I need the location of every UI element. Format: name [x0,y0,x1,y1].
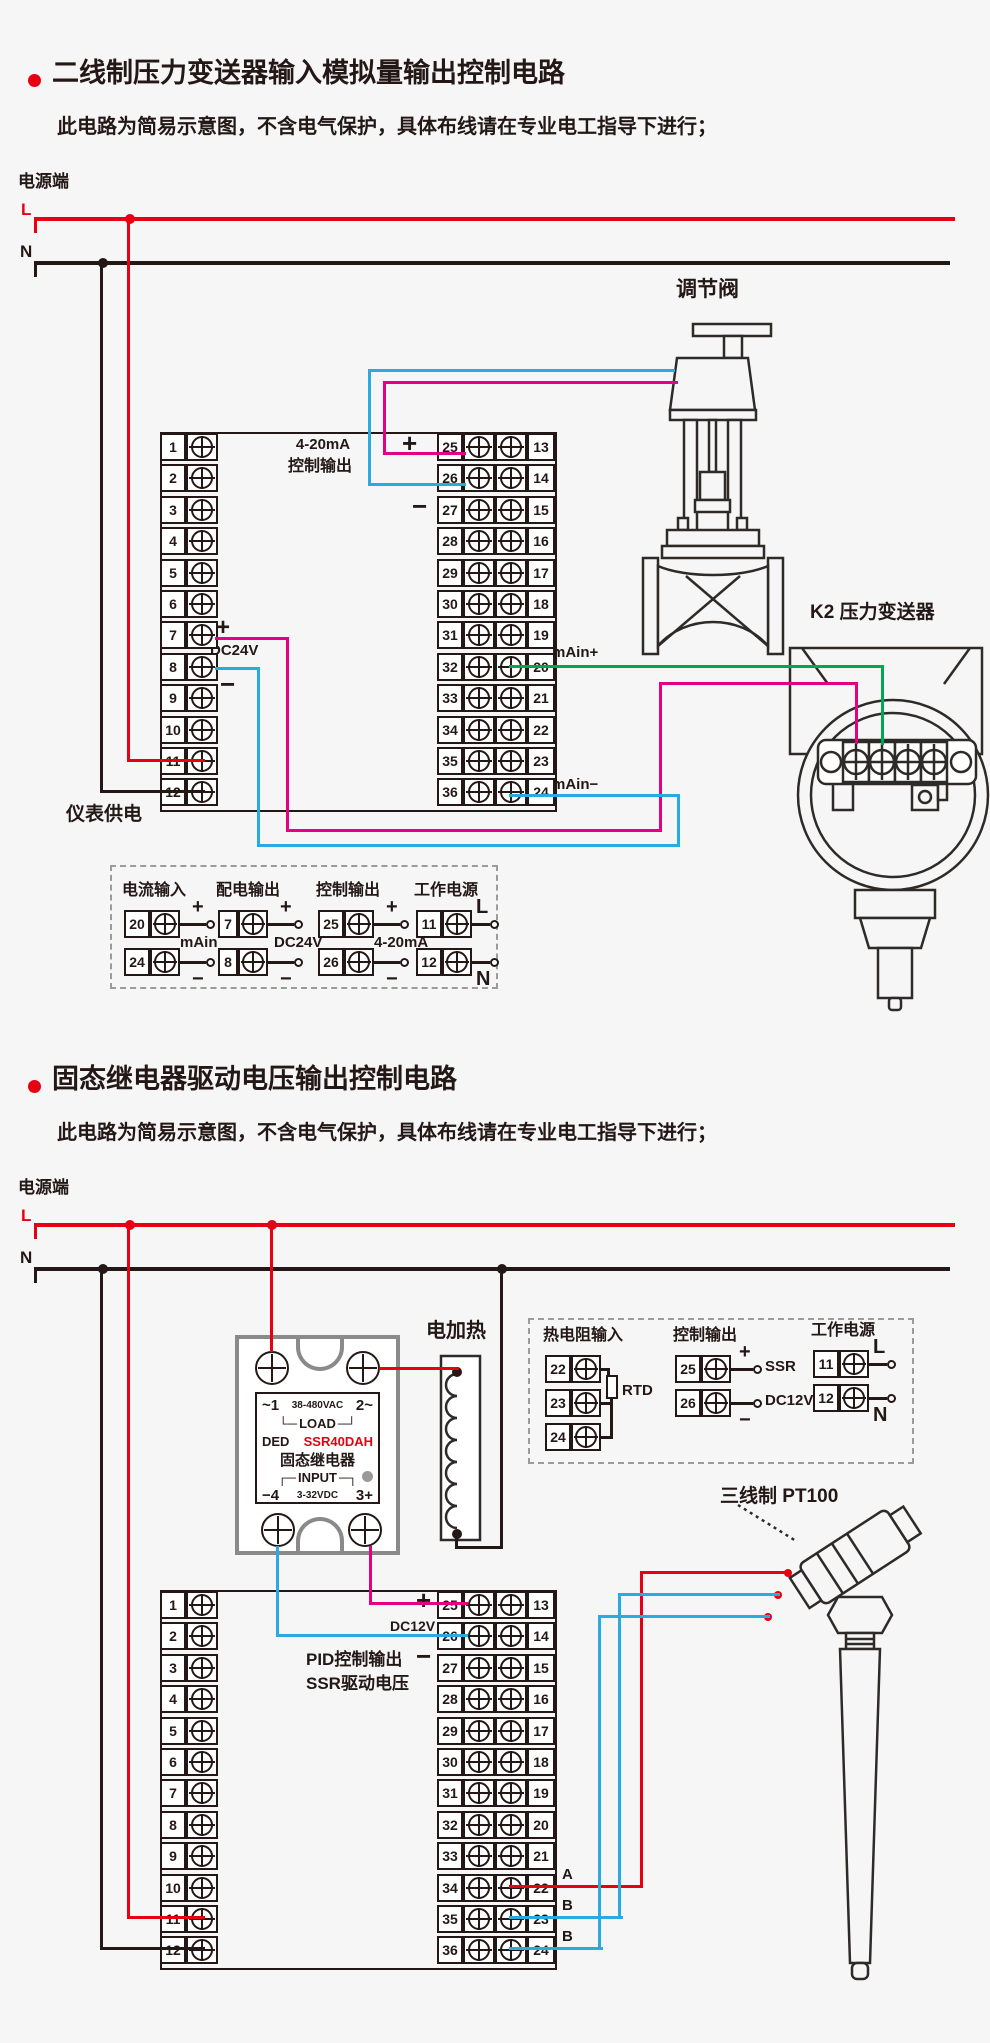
heater-label: 电加热 [426,1320,486,1343]
pt100-wire-b1-label: B [562,1897,573,1914]
block2-screw-b-16 [495,1685,527,1713]
legend2-sign-25: + [739,1341,751,1364]
legend1-end-25 [400,920,409,929]
legend1-w26 [374,961,400,964]
block1-num-mid-26: 26 [437,464,463,492]
block2-screw-left-5 [186,1717,218,1745]
s1-mvalve-v [383,381,386,455]
heater-figure [435,1352,495,1548]
block1-num-left-10: 10 [160,716,186,744]
ssr-screw-2 [346,1351,380,1385]
legend1-num-8: 8 [218,948,238,976]
block2-screw-a-33 [463,1842,495,1870]
block1-screw-a-29 [463,559,495,587]
block1-num-right-16: 16 [527,527,555,555]
legend1-tail-1: DC24V [274,934,322,951]
legend2-screw-26 [701,1389,731,1417]
legend1-sign-12: N [476,968,490,991]
s1-mloop-h1 [215,637,289,640]
block2-screw-left-9 [186,1842,218,1870]
s2-blk-drop-v [100,1269,103,1950]
block2-num-mid-33: 33 [437,1842,463,1870]
block1-num-right-24: 24 [527,778,555,806]
legend1-end-7 [294,920,303,929]
s2-line-l-tick [34,1223,37,1239]
s2-wb1-h1 [509,1916,623,1919]
block2-num-left-9: 9 [160,1842,186,1870]
block1-screw-a-34 [463,716,495,744]
legend1-title-0: 电流输入 [122,882,186,900]
s1-bloop-h3 [509,794,680,797]
block1-screw-b-23 [495,747,527,775]
s2-red-ssr-v [270,1225,273,1352]
legend2-rtd-v [610,1399,613,1439]
block2-screw-left-7 [186,1779,218,1807]
legend2-end-11 [887,1360,896,1369]
block1-num-left-8: 8 [160,653,186,681]
block1-screw-a-36 [463,778,495,806]
s1-blk-drop-h [100,790,205,793]
block2-num-mid-32: 32 [437,1811,463,1839]
s2-blue-ssr-v [276,1546,279,1637]
legend1-screw-24 [150,948,180,976]
legend2-num-12: 12 [813,1384,839,1412]
block2-num-mid-30: 30 [437,1748,463,1776]
block2-screw-a-35 [463,1905,495,1933]
block1-num-mid-29: 29 [437,559,463,587]
wiring-diagram-page: 二线制压力变送器输入模拟量输出控制电路 此电路为简易示意图，不含电气保护，具体布… [0,0,990,2043]
legend2-num-23: 23 [545,1389,571,1417]
block1-num-mid-36: 36 [437,778,463,806]
block2-screw-a-36 [463,1936,495,1964]
block1-screw-a-26 [463,464,495,492]
s2-red-drop-h [127,1916,205,1919]
s2-red-drop-v [127,1225,130,1919]
block2-num-left-5: 5 [160,1717,186,1745]
legend1-w8 [268,961,294,964]
block1-num-left-6: 6 [160,590,186,618]
s1-bvalve-h2 [368,369,675,372]
ssr-line-load: └─LOAD─┘ [257,1414,378,1432]
block1-num-mid-34: 34 [437,716,463,744]
s1-line-l-tick [34,217,37,233]
s1-mvalve-h2 [383,381,678,384]
s1-green-v [881,665,884,745]
section1-bullet-icon [28,74,41,87]
block2-num-right-18: 18 [527,1748,555,1776]
block2-num-mid-29: 29 [437,1717,463,1745]
block2-num-mid-25: 25 [437,1591,463,1619]
legend2-w25 [731,1368,753,1371]
legend2-rtd-resistor [606,1375,618,1399]
block2-num-right-14: 14 [527,1622,555,1650]
block2-screw-a-32 [463,1811,495,1839]
block1-screw-b-19 [495,621,527,649]
legend2-w11 [869,1363,887,1366]
legend2-sign-11: L [873,1336,885,1359]
s2-mag-ssr-v [369,1546,372,1605]
s2-junction-n1 [98,1264,108,1274]
legend2-num-24: 24 [545,1423,571,1451]
block1-num-right-19: 19 [527,621,555,649]
legend1-title-2: 控制输出 [316,882,380,900]
legend1-w24 [180,961,206,964]
valve-label: 调节阀 [676,278,739,302]
block2-num-right-23: 23 [527,1905,555,1933]
block2-num-left-2: 2 [160,1622,186,1650]
block1-screw-b-15 [495,496,527,524]
s1-line-l [35,217,955,221]
block1-screw-left-3 [186,496,218,524]
s1-mloop-h2 [286,829,662,832]
legend2-sign-26: − [739,1409,751,1432]
legend1-num-24: 24 [124,948,150,976]
block1-screw-a-30 [463,590,495,618]
legend2-screw-11 [839,1350,869,1378]
block1-screw-left-6 [186,590,218,618]
legend2-sign-12: N [873,1404,887,1427]
s2-wb2-v [598,1616,601,1950]
block2-screw-left-8 [186,1811,218,1839]
block2-screw-left-12 [186,1936,218,1964]
legend2-screw-24 [571,1423,601,1451]
block1-num-mid-32: 32 [437,653,463,681]
s2-blue-ssr-h [276,1634,468,1637]
block2-num-mid-28: 28 [437,1685,463,1713]
section2-bullet-icon [28,1080,41,1093]
block1-screw-a-33 [463,684,495,712]
block1-screw-left-2 [186,464,218,492]
legend1-screw-25 [344,910,374,938]
s1-bvalve-v [368,369,371,486]
section2-line-l-label: L [21,1206,31,1226]
section1-title: 二线制压力变送器输入模拟量输出控制电路 [52,58,565,89]
s2-red-heater-h [379,1367,459,1370]
block2-screw-left-10 [186,1874,218,1902]
section1-line-n-label: N [20,242,32,262]
block1-num-right-22: 22 [527,716,555,744]
block2-num-right-21: 21 [527,1842,555,1870]
block1-num-mid-25: 25 [437,433,463,461]
ssr-line-input: ┌─INPUT─┐ [257,1468,378,1486]
section1-line-l-label: L [21,200,31,220]
legend1-tail-0: mAin [180,934,218,951]
block2-screw-a-29 [463,1717,495,1745]
block1-num-right-13: 13 [527,433,555,461]
legend2-screw-22 [571,1355,601,1383]
block1-num-left-5: 5 [160,559,186,587]
s1-bloop-h1 [215,667,260,670]
ssr-screw-3 [348,1513,382,1547]
legend2-end-12 [887,1394,896,1403]
block1-main-plus-label: mAin+ [552,644,598,661]
s2-wa-h2 [640,1571,790,1574]
s2-line-n-tick [34,1267,37,1283]
block2-num-left-12: 12 [160,1936,186,1964]
block1-screw-b-21 [495,684,527,712]
legend1-sign-11: L [476,896,488,919]
legend1-screw-8 [238,948,268,976]
legend1-screw-12 [442,948,472,976]
block1-num-right-23: 23 [527,747,555,775]
legend1-end-24 [206,958,215,967]
legend1-screw-26 [344,948,374,976]
legend1-title-1: 配电输出 [216,882,280,900]
s2-junction-n2 [497,1264,507,1274]
block1-num-mid-30: 30 [437,590,463,618]
block1-num-mid-27: 27 [437,496,463,524]
block1-screw-b-18 [495,590,527,618]
block1-screw-left-4 [186,527,218,555]
block2-num-mid-31: 31 [437,1779,463,1807]
legend1-num-25: 25 [318,910,344,938]
section2-line-n-label: N [20,1248,32,1268]
s2-wa-v [640,1572,643,1888]
legend2-lab-26: DC12V [765,1392,813,1409]
legend1-num-7: 7 [218,910,238,938]
block1-num-right-14: 14 [527,464,555,492]
block2-num-left-7: 7 [160,1779,186,1807]
block2-screw-a-28 [463,1685,495,1713]
block2-screw-left-2 [186,1622,218,1650]
s1-green-h [509,665,884,668]
block1-screw-b-14 [495,464,527,492]
block2-screw-b-23 [495,1905,527,1933]
legend2-w12 [869,1397,887,1400]
block2-num-left-10: 10 [160,1874,186,1902]
s2-blk-heater-h [455,1546,503,1549]
block1-num-left-2: 2 [160,464,186,492]
block1-num-left-9: 9 [160,684,186,712]
legend1-num-11: 11 [416,910,442,938]
block2-screw-a-27 [463,1654,495,1682]
block1-screw-a-27 [463,496,495,524]
section2-subtitle: 此电路为简易示意图，不含电气保护，具体布线请在专业电工指导下进行； [57,1122,717,1145]
legend2-num-25: 25 [675,1355,701,1383]
legend2-w26 [731,1402,753,1405]
legend2-end-25 [753,1365,762,1374]
block1-screw-b-24 [495,778,527,806]
legend1-w20 [180,923,206,926]
ssr-line-model: DEDSSR40DAH [257,1432,378,1450]
block2-num-mid-27: 27 [437,1654,463,1682]
legend1-sign-25: + [386,896,398,919]
s2-mag-ssr-h [369,1602,468,1605]
block2-screw-left-3 [186,1654,218,1682]
s1-line-n-tick [34,261,37,277]
block2-num-right-17: 17 [527,1717,555,1745]
block2-screw-b-18 [495,1748,527,1776]
block1-screw-a-28 [463,527,495,555]
legend2-num-22: 22 [545,1355,571,1383]
s1-bloop-v2 [677,794,680,847]
legend1-end-12 [490,958,499,967]
s2-junction-l1 [125,1220,135,1230]
legend1-w7 [268,923,294,926]
block1-screw-b-16 [495,527,527,555]
block2-num-right-20: 20 [527,1811,555,1839]
legend1-screw-11 [442,910,472,938]
block1-main-minus-label: mAin− [552,776,598,793]
legend1-w12 [472,961,490,964]
block1-screw-left-8 [186,653,218,681]
block1-num-mid-33: 33 [437,684,463,712]
s2-wb1-v [618,1594,621,1919]
block2-num-left-3: 3 [160,1654,186,1682]
block2-num-right-13: 13 [527,1591,555,1619]
block2-screw-left-6 [186,1748,218,1776]
s1-red-drop-h [127,759,205,762]
legend2-screw-23 [571,1389,601,1417]
s1-mvalve-h1 [383,452,466,455]
s1-mloop-h3 [659,682,858,685]
section1-subtitle: 此电路为简易示意图，不含电气保护，具体布线请在专业电工指导下进行； [57,116,717,139]
legend2-title-1: 控制输出 [673,1327,737,1345]
block1-num-right-15: 15 [527,496,555,524]
block2-screw-a-30 [463,1748,495,1776]
legend1-end-11 [490,920,499,929]
s1-red-drop-v [127,219,130,762]
legend1-sign-7: + [280,896,292,919]
block2-screw-a-25 [463,1591,495,1619]
block1-num-right-18: 18 [527,590,555,618]
legend2-screw-12 [839,1384,869,1412]
legend2-num-11: 11 [813,1350,839,1378]
s2-blk-heater-v [500,1269,503,1549]
block1-screw-a-25 [463,433,495,461]
legend1-sign-20: + [192,896,204,919]
s1-bvalve-h1 [368,483,466,486]
block1-screw-left-1 [186,433,218,461]
legend1-screw-7 [238,910,268,938]
block2-num-right-22: 22 [527,1874,555,1902]
block1-screw-a-31 [463,621,495,649]
s1-junction-n [98,258,108,268]
legend1-sign-24: − [192,968,204,991]
s1-mloop-v1 [286,637,289,832]
legend1-num-26: 26 [318,948,344,976]
block2-screw-b-20 [495,1811,527,1839]
block1-num-left-1: 1 [160,433,186,461]
s2-line-n [35,1267,950,1271]
legend2-title-0: 热电阻输入 [543,1327,623,1345]
block2-num-left-11: 11 [160,1905,186,1933]
block2-screw-left-4 [186,1685,218,1713]
block2-num-mid-36: 36 [437,1936,463,1964]
block2-screw-b-24 [495,1936,527,1964]
block1-screw-a-32 [463,653,495,681]
block2-screw-b-14 [495,1622,527,1650]
legend1-num-20: 20 [124,910,150,938]
block2-screw-a-31 [463,1779,495,1807]
s1-blk-drop-v [100,263,103,793]
legend2-screw-25 [701,1355,731,1383]
block2-screw-b-13 [495,1591,527,1619]
pt100-wire-a-label: A [562,1866,573,1883]
block2-num-left-8: 8 [160,1811,186,1839]
s2-wb2-h2 [598,1615,770,1618]
section2-power-terminal-label: 电源端 [18,1178,69,1198]
s1-mloop-v3 [855,682,858,744]
legend2-title-2: 工作电源 [811,1322,875,1340]
block1-screw-b-13 [495,433,527,461]
s2-wa-h1 [509,1885,643,1888]
block1-num-mid-35: 35 [437,747,463,775]
s2-wb1-h2 [618,1593,780,1596]
block1-screw-left-9 [186,684,218,712]
block2-num-mid-35: 35 [437,1905,463,1933]
legend1-num-12: 12 [416,948,442,976]
block1-num-right-21: 21 [527,684,555,712]
block2-num-left-1: 1 [160,1591,186,1619]
s2-blk-heater-v2 [455,1534,458,1548]
s1-line-n [35,261,950,265]
legend1-sign-26: − [386,968,398,991]
legend2-rtd-label: RTD [622,1382,653,1399]
block1-num-right-17: 17 [527,559,555,587]
legend2-lab-25: SSR [765,1358,796,1375]
legend1-end-26 [400,958,409,967]
s2-wb2-h1 [509,1947,603,1950]
legend1-w25 [374,923,400,926]
section2-title: 固态继电器驱动电压输出控制电路 [52,1064,457,1095]
ssr-line-name: 固态继电器 [257,1450,378,1468]
legend1-end-8 [294,958,303,967]
block2-num-left-6: 6 [160,1748,186,1776]
legend2-num-26: 26 [675,1389,701,1417]
block2-num-mid-34: 34 [437,1874,463,1902]
block1-screw-left-10 [186,716,218,744]
block1-num-left-3: 3 [160,496,186,524]
block1-instrument-supply-label: 仪表供电 [66,804,142,826]
block1-num-mid-28: 28 [437,527,463,555]
s2-blk-drop-h [100,1947,205,1950]
block2-num-right-19: 19 [527,1779,555,1807]
s1-mloop-v2 [659,684,662,832]
s2-line-l [35,1223,955,1227]
legend1-title-3: 工作电源 [414,882,478,900]
ssr-screw-1 [255,1351,289,1385]
block2-num-right-24: 24 [527,1936,555,1964]
block1-num-left-4: 4 [160,527,186,555]
legend1-screw-20 [150,910,180,938]
block2-num-right-16: 16 [527,1685,555,1713]
block2-screw-left-1 [186,1591,218,1619]
block2-screw-left-11 [186,1905,218,1933]
ssr-line-load-rating: ~138-480VAC2~ [257,1396,378,1414]
block2-screw-b-21 [495,1842,527,1870]
ssr-line-input-rating: −43-32VDC3+ [257,1486,378,1504]
ssr-label-panel: ~138-480VAC2~ └─LOAD─┘ DEDSSR40DAH 固态继电器… [255,1392,380,1504]
pt100-sensor-figure [700,1495,990,2043]
legend1-end-20 [206,920,215,929]
s1-bloop-h2 [257,844,680,847]
block1-screw-a-35 [463,747,495,775]
block1-screw-b-17 [495,559,527,587]
pt100-wire-b2-label: B [562,1928,573,1945]
s1-bloop-v1 [257,667,260,847]
block2-num-right-15: 15 [527,1654,555,1682]
s1-junction-l [125,214,135,224]
ssr-screw-4 [261,1513,295,1547]
legend2-end-26 [753,1399,762,1408]
block2-screw-b-19 [495,1779,527,1807]
pressure-transmitter-figure [750,600,990,1020]
block1-screw-b-22 [495,716,527,744]
block2-screw-b-22 [495,1874,527,1902]
block1-num-left-7: 7 [160,621,186,649]
ssr-led-icon [362,1471,373,1482]
